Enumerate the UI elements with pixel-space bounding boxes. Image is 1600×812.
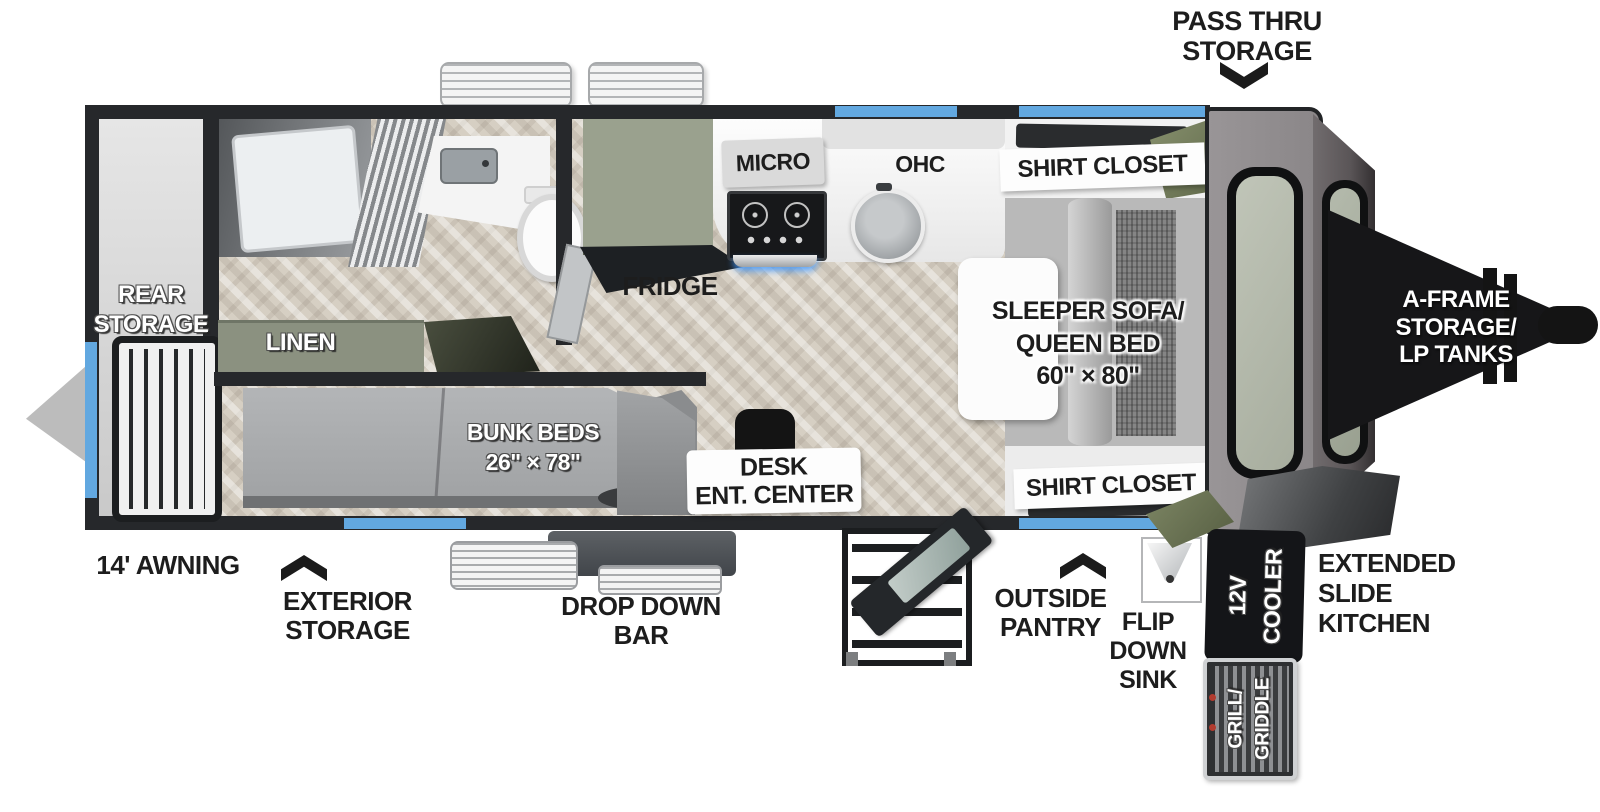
desk-label: DESK ENT. CENTER bbox=[687, 451, 862, 511]
drop-down-bar-line1: DROP DOWN bbox=[552, 592, 730, 621]
rear-storage-line2: STORAGE bbox=[81, 310, 221, 340]
grill-line2: GRIDDLE bbox=[1250, 662, 1277, 776]
micro-label: MICRO bbox=[722, 148, 825, 177]
drop-down-bar-line2: BAR bbox=[552, 621, 730, 650]
a-frame-label: A-FRAME STORAGE/ LP TANKS bbox=[1372, 286, 1540, 369]
ohc-label: OHC bbox=[880, 152, 960, 178]
roof-vent-left bbox=[440, 62, 572, 108]
window-top-1 bbox=[835, 106, 957, 117]
kitchen-faucet bbox=[876, 183, 892, 191]
cap-window-inner bbox=[1227, 167, 1303, 479]
bath-bottom-wall bbox=[214, 372, 706, 386]
desk-sign: DESK ENT. CENTER bbox=[686, 447, 861, 514]
window-top-2 bbox=[1019, 106, 1205, 117]
cooktop bbox=[727, 191, 827, 261]
window-bottom-1 bbox=[344, 518, 466, 529]
cooler-line1: 12V bbox=[1219, 529, 1257, 662]
cooler-12v-label: 12V COOLER bbox=[1219, 529, 1291, 663]
slide-kitchen-line1: EXTENDED bbox=[1318, 549, 1498, 579]
flip-down-sink-label: FLIP DOWN SINK bbox=[1102, 608, 1194, 695]
grill-griddle-label: GRILL/ GRIDDLE bbox=[1223, 662, 1276, 776]
cooktop-trim bbox=[733, 255, 817, 267]
shower-pan bbox=[231, 125, 365, 253]
pass-thru-storage-label: PASS THRU STORAGE bbox=[1147, 6, 1347, 66]
a-frame-line1: A-FRAME bbox=[1372, 286, 1540, 314]
pass-thru-line1: PASS THRU bbox=[1147, 6, 1347, 36]
sofa-line3: 60" × 80" bbox=[988, 360, 1188, 393]
cooktop-knobs bbox=[743, 236, 807, 244]
desk-line1: DESK bbox=[687, 451, 861, 482]
burner-left bbox=[742, 202, 768, 228]
sleeper-sofa-label: SLEEPER SOFA/ QUEEN BED 60" × 80" bbox=[988, 295, 1188, 393]
bunk-beds-label: BUNK BEDS 26" × 78" bbox=[448, 418, 618, 478]
step-foot-left bbox=[846, 652, 858, 666]
shirt-closet-top-banner: SHIRT CLOSET bbox=[999, 142, 1205, 191]
cap-window-inner-glass bbox=[1236, 176, 1294, 470]
bath-faucet bbox=[482, 160, 489, 167]
exterior-storage-label: EXTERIOR STORAGE bbox=[270, 587, 425, 645]
flip-down-sink-basin bbox=[1147, 543, 1192, 593]
grill-knob-2 bbox=[1209, 724, 1216, 731]
sofa-line2: QUEEN BED bbox=[988, 328, 1188, 361]
exterior-storage-line1: EXTERIOR bbox=[270, 587, 425, 616]
awning-label: 14' AWNING bbox=[83, 551, 253, 580]
rear-bumper bbox=[26, 366, 86, 462]
cooler-line2: COOLER bbox=[1253, 530, 1291, 663]
pass-thru-line2: STORAGE bbox=[1147, 36, 1347, 66]
rv-floorplan: PASS THRU STORAGE REAR STORAGE LINEN BUN… bbox=[0, 0, 1600, 812]
a-frame-line3: LP TANKS bbox=[1372, 341, 1540, 369]
burner-right bbox=[784, 202, 810, 228]
bunk-line1: BUNK BEDS bbox=[448, 418, 618, 448]
flip-down-sink bbox=[1141, 537, 1202, 603]
shirt-closet-top-label: SHIRT CLOSET bbox=[1000, 150, 1206, 184]
grill-line1: GRILL/ bbox=[1223, 662, 1250, 776]
desk-line2: ENT. CENTER bbox=[687, 480, 861, 511]
bunk-line2: 26" × 78" bbox=[448, 448, 618, 478]
a-frame-line2: STORAGE/ bbox=[1372, 314, 1540, 342]
slide-kitchen-line3: KITCHEN bbox=[1318, 609, 1498, 639]
fridge bbox=[583, 119, 713, 255]
rear-storage-hatch bbox=[112, 336, 222, 522]
linen-label: LINEN bbox=[218, 330, 383, 357]
rear-storage-line1: REAR bbox=[81, 280, 221, 310]
kitchen-sink bbox=[851, 189, 925, 263]
hitch-coupler bbox=[1538, 306, 1598, 344]
drop-down-bar-handle-left bbox=[450, 541, 578, 590]
flip-sink-line3: SINK bbox=[1102, 666, 1194, 695]
outside-pantry-arrow-icon bbox=[1060, 553, 1106, 579]
grill-knob-1 bbox=[1209, 694, 1216, 701]
rear-storage-label: REAR STORAGE bbox=[81, 280, 221, 340]
sofa-line1: SLEEPER SOFA/ bbox=[988, 295, 1188, 328]
bath-sink bbox=[440, 148, 498, 184]
fridge-label: FRIDGE bbox=[600, 272, 740, 301]
slide-kitchen-line2: SLIDE bbox=[1318, 579, 1498, 609]
roof-vent-right bbox=[588, 62, 704, 108]
extended-slide-kitchen-label: EXTENDED SLIDE KITCHEN bbox=[1318, 549, 1498, 639]
overhead-cabinet bbox=[822, 119, 1005, 149]
flip-sink-line1: FLIP bbox=[1102, 608, 1194, 637]
bunk-divider bbox=[434, 388, 445, 508]
step-foot-right bbox=[944, 652, 956, 666]
grill-griddle: GRILL/ GRIDDLE bbox=[1203, 658, 1297, 780]
exterior-storage-line2: STORAGE bbox=[270, 616, 425, 645]
drop-down-bar-label: DROP DOWN BAR bbox=[552, 592, 730, 650]
window-rear bbox=[85, 342, 97, 498]
exterior-storage-arrow-icon bbox=[281, 555, 327, 581]
rear-storage-hatch-slats bbox=[129, 349, 205, 509]
cooler-12v: 12V COOLER bbox=[1204, 529, 1305, 664]
flip-sink-line2: DOWN bbox=[1102, 637, 1194, 666]
shirt-closet-bottom-label: SHIRT CLOSET bbox=[1014, 470, 1209, 504]
flip-down-sink-drain bbox=[1166, 575, 1174, 583]
